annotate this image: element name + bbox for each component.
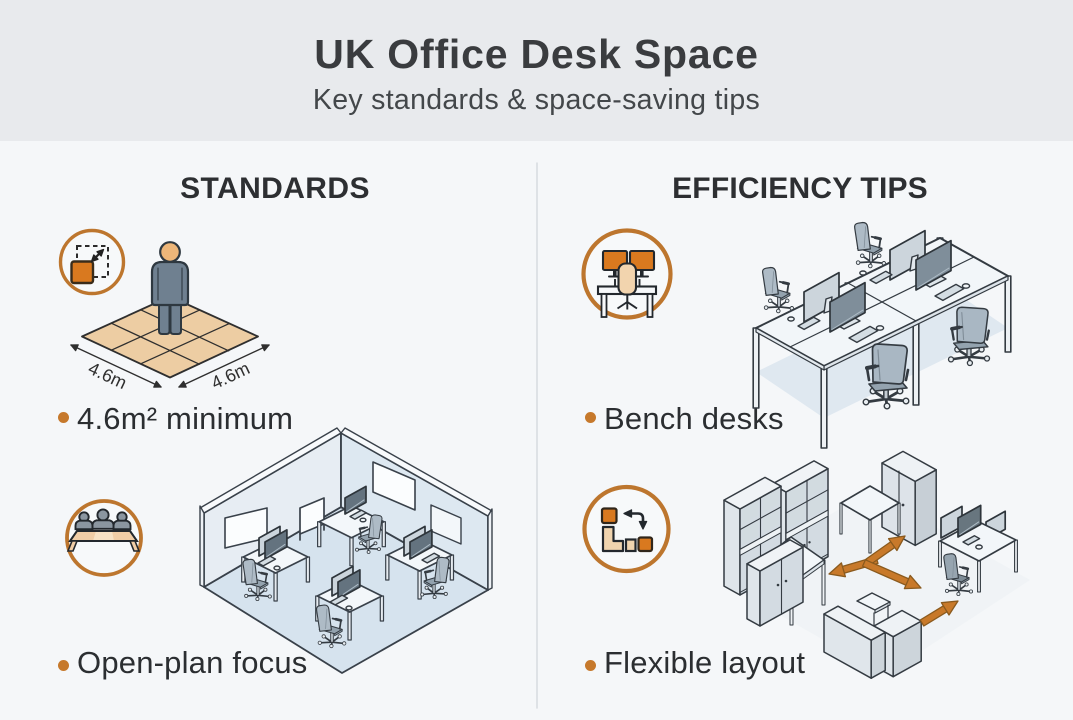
svg-text:4.6m: 4.6m	[85, 358, 130, 393]
